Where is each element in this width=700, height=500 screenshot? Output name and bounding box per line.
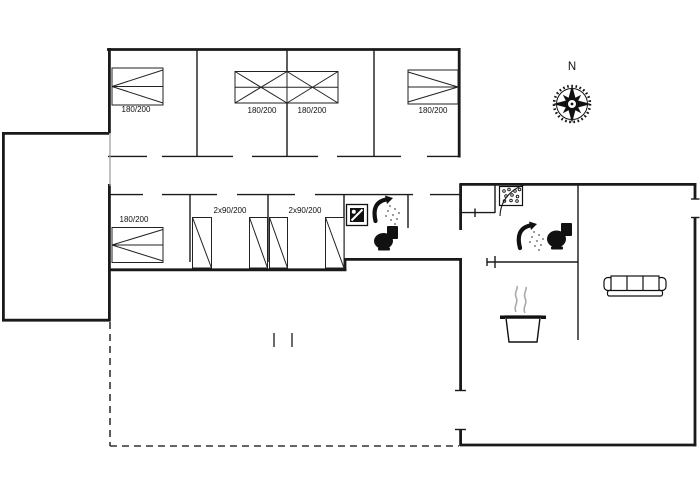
floor-plan-drawing bbox=[0, 0, 700, 500]
cooking-pot-icon bbox=[500, 286, 546, 342]
bed-size-label: 180/200 bbox=[108, 216, 160, 224]
bed-size-label: 180/200 bbox=[286, 107, 338, 115]
double-bed-2 bbox=[235, 72, 287, 104]
shower-icon bbox=[375, 196, 400, 225]
outer-walls bbox=[2, 48, 696, 446]
bunk-size-label: 2x90/200 bbox=[277, 207, 333, 215]
shower-icon-2 bbox=[519, 222, 544, 251]
toilet-icon-2 bbox=[547, 223, 572, 250]
toilet-icon bbox=[374, 226, 398, 251]
double-bed-1 bbox=[112, 68, 163, 105]
bed-size-label: 180/200 bbox=[236, 107, 288, 115]
dashed-terrace-outline bbox=[110, 322, 459, 446]
double-bed-5 bbox=[112, 228, 163, 263]
double-bed-4 bbox=[408, 70, 458, 104]
bed-size-label: 180/200 bbox=[407, 107, 459, 115]
washing-machine-icon bbox=[347, 205, 368, 226]
double-bed-3 bbox=[287, 72, 338, 104]
floor-plan-canvas: 180/200 180/200 180/200 180/200 180/200 … bbox=[0, 0, 700, 500]
compass-rose-icon bbox=[553, 85, 591, 123]
north-label: N bbox=[560, 62, 584, 74]
bunk-size-label: 2x90/200 bbox=[202, 207, 258, 215]
bed-size-label: 180/200 bbox=[110, 106, 162, 114]
terrace-posts bbox=[274, 333, 292, 347]
sofa-icon bbox=[604, 276, 666, 296]
